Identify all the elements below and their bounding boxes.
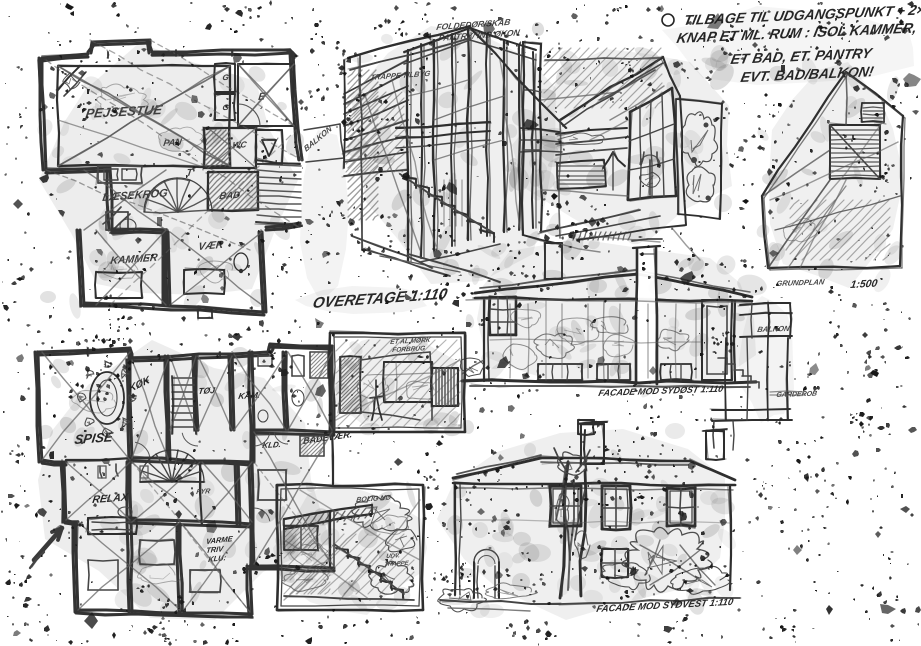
svg-text:1:500: 1:500 xyxy=(850,278,879,291)
svg-text:UDV.: UDV. xyxy=(386,553,401,560)
svg-text:SPISE: SPISE xyxy=(74,429,115,447)
svg-text:FYR: FYR xyxy=(196,488,212,496)
svg-text:VÆR: VÆR xyxy=(198,239,225,253)
svg-text:BALKON: BALKON xyxy=(757,324,791,334)
svg-text:GRUNDPLAN: GRUNDPLAN xyxy=(776,277,826,288)
